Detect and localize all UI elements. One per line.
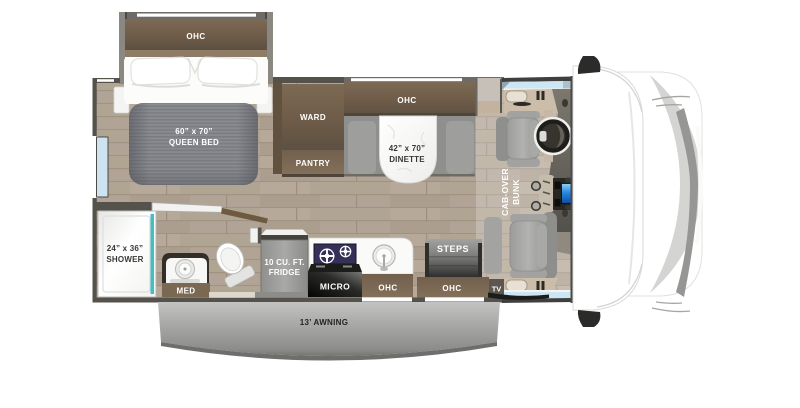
svg-text:SHOWER: SHOWER xyxy=(106,255,143,264)
svg-text:BUNK: BUNK xyxy=(511,179,521,205)
svg-text:OHC: OHC xyxy=(442,284,461,293)
svg-text:60” x 70”: 60” x 70” xyxy=(175,127,212,136)
svg-text:STEPS: STEPS xyxy=(437,244,469,254)
svg-text:MICRO: MICRO xyxy=(320,282,350,292)
svg-text:OHC: OHC xyxy=(397,96,416,105)
svg-text:OHC: OHC xyxy=(378,284,397,293)
svg-text:13’ AWNING: 13’ AWNING xyxy=(300,318,349,327)
svg-text:42” x 70”: 42” x 70” xyxy=(389,144,426,153)
svg-text:MED: MED xyxy=(177,287,196,296)
svg-text:24” x 36”: 24” x 36” xyxy=(107,244,144,253)
svg-text:FRIDGE: FRIDGE xyxy=(269,268,301,277)
svg-text:QUEEN BED: QUEEN BED xyxy=(169,138,219,147)
svg-text:TV: TV xyxy=(492,285,502,294)
svg-text:OHC: OHC xyxy=(186,32,205,41)
svg-text:10 CU. FT.: 10 CU. FT. xyxy=(264,258,304,267)
svg-text:PANTRY: PANTRY xyxy=(296,159,331,168)
svg-text:WARD: WARD xyxy=(300,113,326,122)
svg-text:DINETTE: DINETTE xyxy=(389,155,425,164)
svg-text:CAB-OVER: CAB-OVER xyxy=(500,168,510,216)
